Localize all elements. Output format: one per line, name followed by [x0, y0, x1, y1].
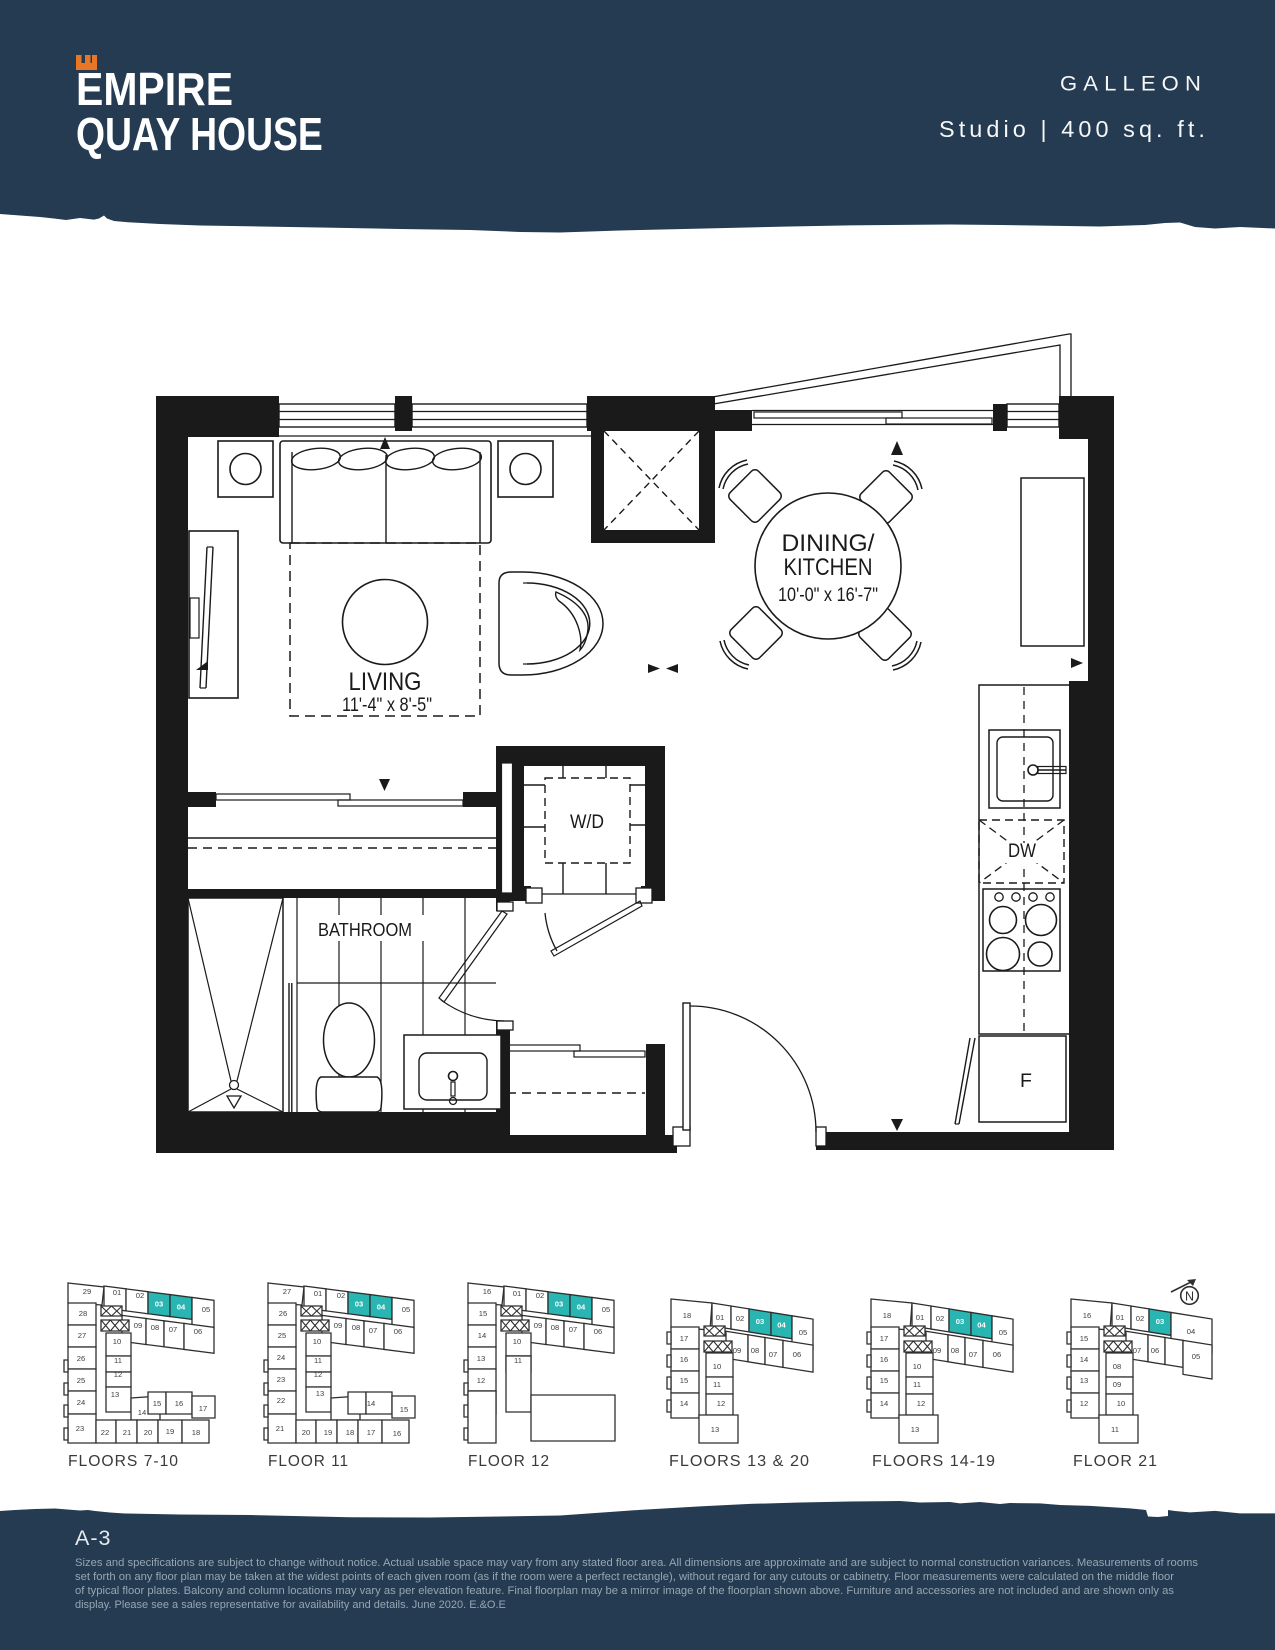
svg-text:02: 02: [936, 1314, 944, 1323]
svg-text:22: 22: [101, 1428, 109, 1437]
svg-text:12: 12: [917, 1399, 925, 1408]
svg-text:A-3: A-3: [75, 1526, 111, 1550]
svg-text:18: 18: [346, 1428, 354, 1437]
svg-text:01: 01: [314, 1289, 322, 1298]
svg-text:28: 28: [79, 1309, 87, 1318]
svg-text:25: 25: [77, 1376, 85, 1385]
svg-text:09: 09: [334, 1321, 342, 1330]
svg-text:16: 16: [175, 1399, 183, 1408]
svg-text:01: 01: [113, 1288, 121, 1297]
svg-text:Studio | 400 sq. ft.: Studio | 400 sq. ft.: [939, 116, 1209, 142]
svg-text:11'-4" x 8'-5": 11'-4" x 8'-5": [342, 695, 432, 716]
svg-text:13: 13: [316, 1389, 324, 1398]
svg-text:W/D: W/D: [570, 811, 604, 833]
svg-text:14: 14: [680, 1399, 688, 1408]
svg-text:08: 08: [551, 1323, 559, 1332]
svg-text:24: 24: [77, 1398, 85, 1407]
svg-text:07: 07: [769, 1350, 777, 1359]
svg-text:15: 15: [1080, 1334, 1088, 1343]
svg-text:03: 03: [1156, 1317, 1164, 1326]
svg-text:FLOOR 21: FLOOR 21: [1073, 1453, 1158, 1470]
svg-text:09: 09: [933, 1346, 941, 1355]
svg-text:10: 10: [313, 1337, 321, 1346]
svg-text:09: 09: [134, 1321, 142, 1330]
svg-text:15: 15: [680, 1376, 688, 1385]
svg-text:04: 04: [977, 1321, 986, 1330]
svg-text:17: 17: [199, 1404, 207, 1413]
svg-text:15: 15: [153, 1399, 161, 1408]
svg-text:03: 03: [355, 1300, 363, 1309]
svg-text:05: 05: [202, 1305, 210, 1314]
svg-text:13: 13: [911, 1425, 919, 1434]
svg-text:13: 13: [111, 1390, 119, 1399]
svg-text:01: 01: [716, 1313, 724, 1322]
svg-text:11: 11: [913, 1380, 921, 1389]
svg-text:03: 03: [155, 1300, 163, 1309]
svg-text:06: 06: [1151, 1346, 1159, 1355]
svg-text:05: 05: [402, 1305, 410, 1314]
svg-text:16: 16: [393, 1429, 401, 1438]
svg-text:16: 16: [680, 1355, 688, 1364]
svg-text:06: 06: [993, 1350, 1001, 1359]
svg-text:20: 20: [302, 1428, 310, 1437]
svg-text:11: 11: [1111, 1425, 1119, 1434]
svg-text:08: 08: [352, 1323, 360, 1332]
svg-text:02: 02: [337, 1291, 345, 1300]
svg-text:09: 09: [1113, 1380, 1121, 1389]
svg-text:15: 15: [479, 1309, 487, 1318]
svg-text:09: 09: [733, 1346, 741, 1355]
svg-text:25: 25: [278, 1331, 286, 1340]
svg-text:DINING/: DINING/: [782, 530, 875, 557]
svg-text:Sizes and specifications are s: Sizes and specifications are subject to …: [75, 1557, 1199, 1569]
svg-text:20: 20: [144, 1428, 152, 1437]
svg-text:14: 14: [367, 1399, 375, 1408]
svg-text:FLOORS 13 & 20: FLOORS 13 & 20: [669, 1453, 810, 1470]
svg-text:14: 14: [138, 1408, 146, 1417]
svg-text:18: 18: [683, 1311, 691, 1320]
svg-text:05: 05: [999, 1328, 1007, 1337]
svg-text:10: 10: [513, 1337, 521, 1346]
svg-text:07: 07: [1133, 1346, 1141, 1355]
svg-text:05: 05: [602, 1305, 610, 1314]
svg-text:11: 11: [314, 1356, 322, 1365]
svg-text:GALLEON: GALLEON: [1060, 72, 1207, 96]
svg-text:24: 24: [277, 1353, 285, 1362]
svg-text:01: 01: [1116, 1313, 1124, 1322]
svg-text:27: 27: [283, 1287, 291, 1296]
svg-text:18: 18: [883, 1311, 891, 1320]
svg-text:18: 18: [192, 1428, 200, 1437]
svg-text:06: 06: [793, 1350, 801, 1359]
svg-text:08: 08: [1113, 1362, 1121, 1371]
svg-text:04: 04: [377, 1303, 386, 1312]
svg-text:06: 06: [194, 1327, 202, 1336]
svg-text:16: 16: [880, 1355, 888, 1364]
svg-text:14: 14: [1080, 1355, 1088, 1364]
svg-text:04: 04: [777, 1321, 786, 1330]
svg-text:08: 08: [951, 1346, 959, 1355]
svg-text:set forth on any floor plan ma: set forth on any floor plan may be taken…: [75, 1571, 1174, 1583]
svg-text:12: 12: [717, 1399, 725, 1408]
svg-text:03: 03: [956, 1317, 964, 1326]
svg-text:27: 27: [78, 1331, 86, 1340]
svg-text:10'-0" x 16'-7": 10'-0" x 16'-7": [778, 585, 878, 606]
svg-text:15: 15: [880, 1376, 888, 1385]
svg-text:26: 26: [77, 1354, 85, 1363]
svg-text:17: 17: [367, 1428, 375, 1437]
svg-text:11: 11: [713, 1380, 721, 1389]
svg-text:14: 14: [880, 1399, 888, 1408]
svg-text:19: 19: [324, 1428, 332, 1437]
svg-text:13: 13: [711, 1425, 719, 1434]
svg-text:08: 08: [751, 1346, 759, 1355]
svg-text:12: 12: [114, 1370, 122, 1379]
svg-text:of typical floor plates. Balco: of typical floor plates. Balcony and col…: [75, 1585, 1175, 1597]
svg-text:display. Please see a sales re: display. Please see a sales representati…: [75, 1599, 506, 1611]
svg-text:12: 12: [477, 1376, 485, 1385]
svg-text:03: 03: [756, 1317, 764, 1326]
svg-text:DW: DW: [1008, 841, 1036, 862]
svg-text:21: 21: [123, 1428, 131, 1437]
svg-text:02: 02: [1136, 1314, 1144, 1323]
svg-text:LIVING: LIVING: [349, 668, 422, 696]
svg-text:08: 08: [151, 1323, 159, 1332]
svg-text:21: 21: [276, 1424, 284, 1433]
svg-text:10: 10: [713, 1362, 721, 1371]
svg-text:10: 10: [913, 1362, 921, 1371]
svg-text:12: 12: [314, 1370, 322, 1379]
svg-text:06: 06: [394, 1327, 402, 1336]
svg-text:07: 07: [569, 1325, 577, 1334]
svg-text:06: 06: [594, 1327, 602, 1336]
svg-text:05: 05: [1192, 1352, 1200, 1361]
svg-text:23: 23: [277, 1375, 285, 1384]
svg-text:02: 02: [136, 1291, 144, 1300]
svg-text:EMPIRE: EMPIRE: [76, 65, 233, 116]
svg-text:07: 07: [169, 1325, 177, 1334]
svg-text:14: 14: [478, 1331, 486, 1340]
svg-text:QUAY HOUSE: QUAY HOUSE: [76, 110, 323, 161]
svg-text:01: 01: [513, 1289, 521, 1298]
svg-text:17: 17: [880, 1334, 888, 1343]
svg-text:29: 29: [83, 1287, 91, 1296]
svg-text:N: N: [1185, 1290, 1194, 1304]
svg-text:BATHROOM: BATHROOM: [318, 920, 412, 940]
svg-text:11: 11: [114, 1356, 122, 1365]
svg-text:11: 11: [514, 1356, 522, 1365]
svg-text:10: 10: [1117, 1399, 1125, 1408]
svg-text:F: F: [1020, 1070, 1032, 1092]
svg-text:12: 12: [1080, 1399, 1088, 1408]
svg-text:07: 07: [969, 1350, 977, 1359]
svg-text:KITCHEN: KITCHEN: [784, 554, 873, 581]
svg-text:FLOORS 14-19: FLOORS 14-19: [872, 1453, 996, 1470]
svg-text:15: 15: [400, 1405, 408, 1414]
svg-text:03: 03: [555, 1300, 563, 1309]
svg-text:22: 22: [277, 1396, 285, 1405]
svg-text:13: 13: [477, 1354, 485, 1363]
svg-text:07: 07: [369, 1326, 377, 1335]
svg-text:17: 17: [680, 1334, 688, 1343]
svg-text:FLOOR 12: FLOOR 12: [468, 1453, 550, 1470]
svg-text:09: 09: [534, 1321, 542, 1330]
svg-text:05: 05: [799, 1328, 807, 1337]
svg-text:23: 23: [76, 1424, 84, 1433]
svg-text:13: 13: [1080, 1376, 1088, 1385]
svg-text:16: 16: [1083, 1311, 1091, 1320]
svg-text:02: 02: [536, 1291, 544, 1300]
svg-text:01: 01: [916, 1313, 924, 1322]
svg-text:19: 19: [166, 1427, 174, 1436]
svg-text:04: 04: [177, 1303, 186, 1312]
svg-text:02: 02: [736, 1314, 744, 1323]
svg-text:26: 26: [279, 1309, 287, 1318]
svg-text:04: 04: [1187, 1327, 1195, 1336]
svg-text:FLOOR 11: FLOOR 11: [268, 1453, 349, 1470]
svg-text:04: 04: [577, 1303, 586, 1312]
svg-text:16: 16: [483, 1287, 491, 1296]
svg-text:FLOORS 7-10: FLOORS 7-10: [68, 1453, 179, 1470]
svg-text:10: 10: [113, 1337, 121, 1346]
